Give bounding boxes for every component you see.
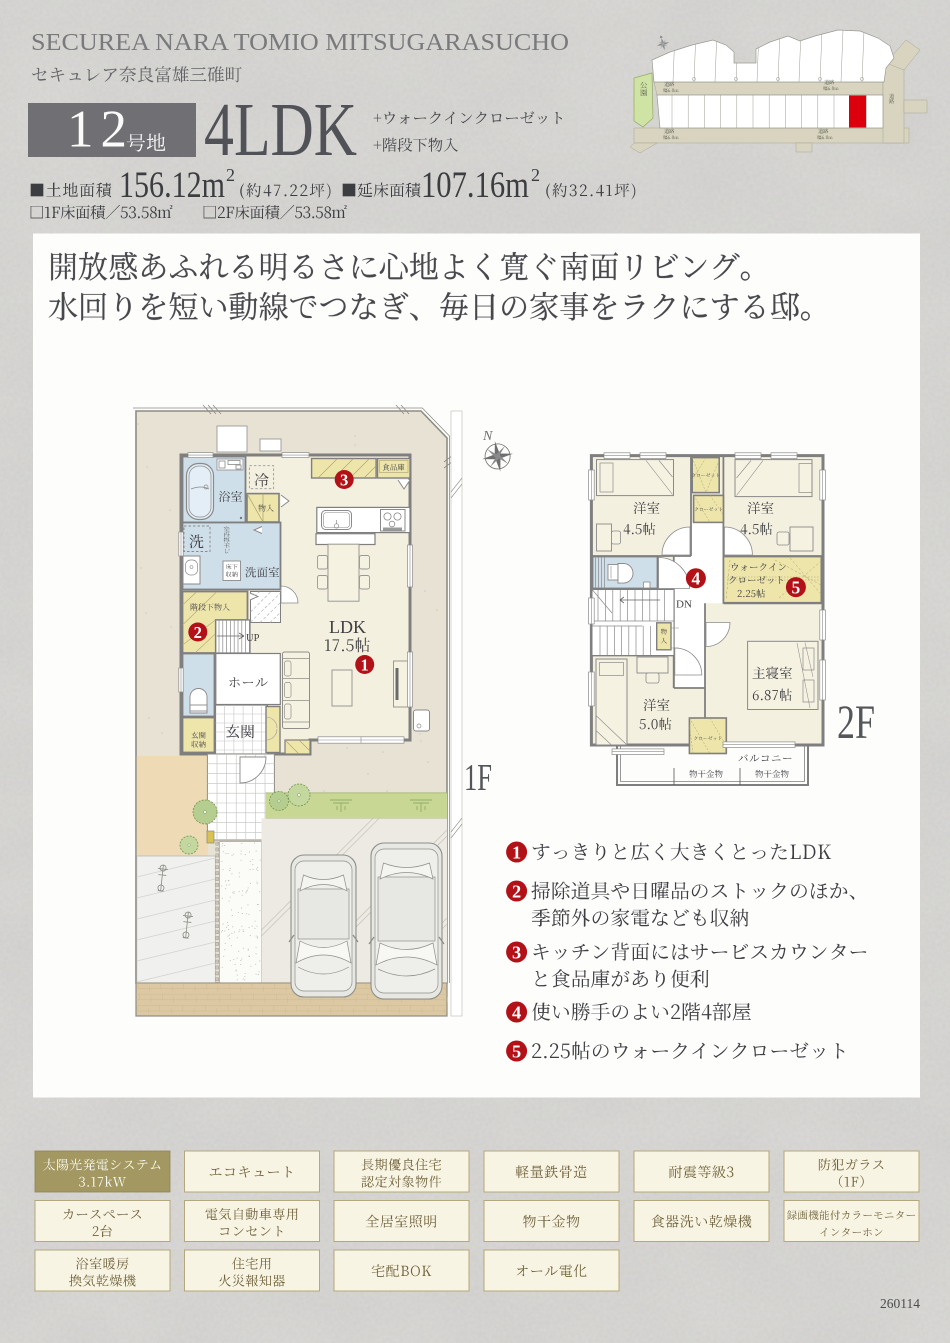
svg-text:4: 4 bbox=[512, 1003, 521, 1023]
svg-text:5: 5 bbox=[792, 577, 801, 597]
svg-text:1: 1 bbox=[512, 843, 521, 863]
svg-text:DN: DN bbox=[676, 599, 692, 611]
svg-text:2: 2 bbox=[194, 623, 202, 642]
svg-text:5: 5 bbox=[512, 1042, 521, 1062]
svg-text:2: 2 bbox=[531, 165, 540, 185]
svg-text:UP: UP bbox=[246, 633, 260, 644]
svg-text:4LDK: 4LDK bbox=[204, 88, 357, 172]
svg-text:SECUREA NARA TOMIO MITSUGARASU: SECUREA NARA TOMIO MITSUGARASUCHO bbox=[31, 30, 569, 56]
svg-text:1: 1 bbox=[361, 655, 369, 674]
svg-text:1F: 1F bbox=[464, 757, 492, 799]
svg-text:2: 2 bbox=[226, 165, 235, 185]
svg-text:2F: 2F bbox=[837, 696, 875, 749]
svg-text:3: 3 bbox=[512, 943, 521, 963]
svg-text:107.16m: 107.16m bbox=[421, 165, 529, 206]
svg-text:LDK: LDK bbox=[329, 617, 366, 637]
svg-text:4: 4 bbox=[692, 569, 701, 589]
svg-text:12: 12 bbox=[67, 101, 134, 159]
svg-text:N: N bbox=[482, 429, 493, 444]
svg-text:2: 2 bbox=[512, 882, 521, 902]
svg-text:156.12m: 156.12m bbox=[119, 165, 225, 206]
svg-text:3: 3 bbox=[340, 470, 348, 489]
svg-text:260114: 260114 bbox=[880, 1296, 920, 1311]
